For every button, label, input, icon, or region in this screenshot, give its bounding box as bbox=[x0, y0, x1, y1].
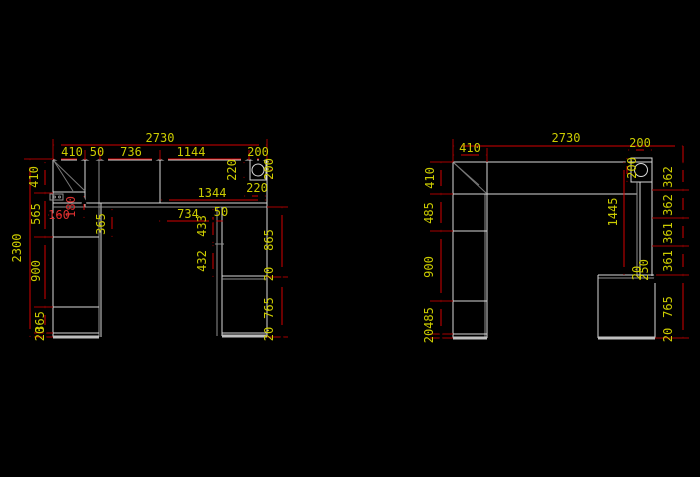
dim-left-485b: 485 bbox=[422, 307, 436, 329]
dim-overall-height: 2300 bbox=[10, 234, 24, 263]
dim-top-200: 200 bbox=[247, 145, 269, 159]
dim-432: 432 bbox=[195, 250, 209, 272]
dim-left-410: 410 bbox=[27, 166, 41, 188]
dim-left-485a: 485 bbox=[422, 202, 436, 224]
dim-right-20: 20 bbox=[661, 328, 675, 342]
dim-right-361a: 361 bbox=[661, 222, 675, 244]
dim-top-410: 410 bbox=[459, 141, 481, 155]
dim-220-vertical: 220 bbox=[225, 159, 239, 181]
drawer-handle bbox=[59, 196, 61, 198]
dim-50-partition: 50 bbox=[214, 205, 228, 219]
dim-220-horizontal: 220 bbox=[246, 181, 268, 195]
dim-overall-width: 2730 bbox=[146, 131, 175, 145]
right-elevation-drawing: 2730 410 410 485 900 485 20 200 200 1445… bbox=[422, 131, 689, 343]
dim-433: 433 bbox=[195, 215, 209, 237]
cad-drawing: 2730 410 50 736 1144 200 2300 410 565 90… bbox=[0, 0, 700, 477]
dim-right-20a: 20 bbox=[262, 267, 276, 281]
drawer-front bbox=[50, 194, 63, 200]
dim-top-736: 736 bbox=[120, 145, 142, 159]
dim-1445: 1445 bbox=[606, 198, 620, 227]
drawer-handle bbox=[54, 196, 56, 198]
cad-drawing-canvas: 2730 410 50 736 1144 200 2300 410 565 90… bbox=[0, 0, 700, 477]
dim-left-900: 900 bbox=[29, 260, 43, 282]
dim-corner-180: 180 bbox=[64, 196, 78, 218]
dim-overall-width: 2730 bbox=[552, 131, 581, 145]
left-dimension-labels: 2730 410 50 736 1144 200 2300 410 565 90… bbox=[10, 131, 276, 341]
dim-junction-20: 20 bbox=[630, 266, 644, 280]
dim-left-20: 20 bbox=[422, 329, 436, 343]
dim-right-20b: 20 bbox=[262, 327, 276, 341]
dim-top-410: 410 bbox=[61, 145, 83, 159]
dim-200-vertical: 200 bbox=[625, 157, 639, 179]
dim-right-361b: 361 bbox=[661, 250, 675, 272]
dim-left-410: 410 bbox=[423, 167, 437, 189]
dim-top-1144: 1144 bbox=[177, 145, 206, 159]
right-dimension-arrows bbox=[438, 143, 685, 342]
dim-200-top: 200 bbox=[629, 136, 651, 150]
dim-top-50: 50 bbox=[90, 145, 104, 159]
door-swing-line bbox=[454, 163, 479, 185]
dim-200-vertical: 200 bbox=[262, 158, 276, 180]
door-swing-line bbox=[54, 161, 85, 191]
dim-1344: 1344 bbox=[198, 186, 227, 200]
dim-right-765: 765 bbox=[262, 297, 276, 319]
dim-right-362b: 362 bbox=[661, 194, 675, 216]
left-elevation-drawing: 2730 410 50 736 1144 200 2300 410 565 90… bbox=[10, 131, 288, 341]
left-cabinet-outlines bbox=[50, 160, 267, 337]
right-dimension-lines bbox=[430, 139, 689, 338]
dim-right-865: 865 bbox=[262, 229, 276, 251]
dim-left-20: 20 bbox=[33, 327, 47, 341]
dim-right-765: 765 bbox=[661, 296, 675, 318]
right-cabinet-outlines bbox=[453, 158, 655, 338]
dim-365-inner: 365 bbox=[94, 213, 108, 235]
dim-left-900: 900 bbox=[422, 256, 436, 278]
dim-left-565: 565 bbox=[29, 203, 43, 225]
dim-right-362a: 362 bbox=[661, 166, 675, 188]
